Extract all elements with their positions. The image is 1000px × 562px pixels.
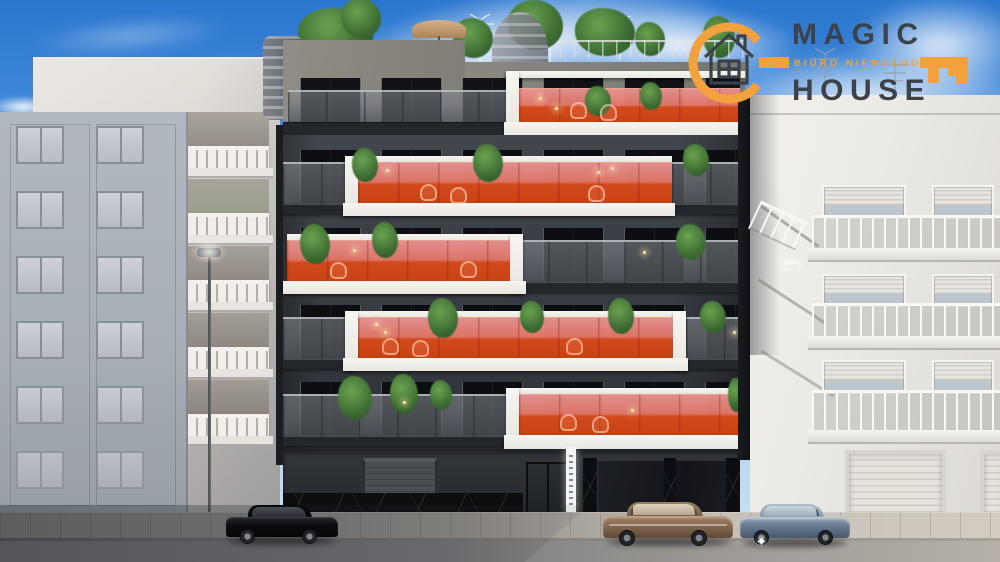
window	[96, 191, 144, 229]
facade-panel	[96, 124, 176, 506]
balcony-plant	[300, 224, 330, 264]
balcony-plant	[352, 148, 378, 182]
window	[16, 256, 64, 294]
balcony-recess	[187, 112, 269, 146]
balcony-plant	[676, 224, 706, 260]
balcony-plant	[700, 301, 726, 333]
balcony-slab	[283, 122, 513, 136]
window	[96, 321, 144, 359]
shuttered-window	[822, 360, 906, 394]
logo-line1: MAGIC	[792, 20, 925, 50]
shuttered-window	[932, 185, 994, 219]
window-light	[596, 170, 601, 175]
house-icon	[705, 35, 753, 83]
balcony-plant	[372, 222, 398, 258]
window	[96, 256, 144, 294]
blue-sedan: ✦	[740, 502, 850, 549]
sparkle-glint: ✦	[756, 534, 767, 550]
balcony-plant	[390, 374, 418, 414]
logo-tagline: BIURO NIERUCHOMOŚCI	[794, 59, 968, 69]
cloud	[29, 9, 231, 62]
window	[16, 126, 64, 164]
window-light	[554, 106, 559, 111]
balcony-recess	[187, 179, 269, 213]
street-scene: ✦ MAGIC BIURO NIERUCHOMOŚCI HOUSE	[0, 0, 1000, 562]
balcony-recess	[187, 380, 269, 414]
balcony-ledge	[177, 369, 273, 379]
featured-building-right-edge	[738, 95, 750, 460]
window-light	[402, 400, 407, 405]
balcony-glass-gray	[283, 162, 347, 205]
balcony-recess	[187, 313, 269, 347]
sign-text-marks	[569, 455, 573, 505]
balcony-plant	[608, 298, 634, 334]
balcony-glass-gray	[283, 317, 347, 360]
facade-panel	[10, 124, 90, 506]
car-wheel	[818, 530, 833, 545]
street-lamp-head	[197, 248, 221, 257]
window-light	[383, 330, 388, 335]
balcony-plant	[520, 301, 544, 333]
rooftop-tree	[341, 0, 381, 38]
shuttered-window	[932, 360, 994, 394]
right-white-building	[750, 95, 1000, 527]
car-wheel	[302, 529, 317, 544]
window-light	[610, 166, 615, 171]
window	[16, 386, 64, 424]
balcony-railing	[812, 390, 1000, 435]
wicker-chair	[412, 340, 429, 357]
balcony-slab-white	[808, 430, 1000, 444]
balcony-frame-slab	[343, 358, 688, 371]
balcony-glass-orange	[358, 162, 672, 204]
balcony-frame-slab	[343, 203, 675, 216]
chrome-trim	[609, 524, 727, 526]
wicker-chair	[570, 102, 587, 119]
wicker-chair	[588, 185, 605, 202]
balustrade-balcony-column	[181, 112, 277, 472]
car-wheel	[691, 530, 707, 546]
shuttered-window	[822, 185, 906, 219]
window	[96, 451, 144, 489]
wicker-chair	[450, 187, 467, 204]
street-lamp-pole	[208, 252, 211, 540]
balcony-glass-gray	[288, 90, 510, 125]
left-gray-building	[0, 112, 188, 512]
window-light	[538, 96, 543, 101]
balcony-ledge	[177, 168, 273, 178]
balcony-plant	[338, 376, 372, 420]
balcony-plant	[473, 144, 503, 182]
wicker-chair	[566, 338, 583, 355]
balcony-slab-white	[808, 248, 1000, 262]
balcony-frame-slab	[283, 281, 526, 294]
balcony-glass-orange	[519, 394, 740, 436]
wicker-chair	[460, 261, 477, 278]
car-window	[631, 504, 697, 515]
black-sedan	[226, 503, 338, 547]
window-light	[630, 408, 635, 413]
wicker-chair	[560, 414, 577, 431]
window-light	[374, 322, 379, 327]
wicker-chair	[600, 104, 617, 121]
car-wheel	[619, 530, 635, 546]
balcony-frame-slab	[504, 435, 750, 449]
wicker-chair	[592, 416, 609, 433]
car-window	[252, 507, 306, 517]
window	[96, 386, 144, 424]
window-light	[732, 330, 737, 335]
brown-sedan	[603, 500, 733, 548]
window	[16, 451, 64, 489]
window	[16, 321, 64, 359]
entrance-sign	[566, 447, 576, 513]
parapet-line	[750, 113, 1000, 115]
balcony-frame-slab	[504, 122, 750, 136]
balcony-ledge	[177, 436, 273, 446]
window-light	[352, 248, 357, 253]
wicker-chair	[420, 184, 437, 201]
wicker-chair	[382, 338, 399, 355]
wicker-chair	[330, 262, 347, 279]
window	[16, 191, 64, 229]
balcony-slab-white	[808, 336, 1000, 350]
car-wheel	[240, 529, 255, 544]
balcony-ledge	[177, 235, 273, 245]
balcony-ledge	[177, 302, 273, 312]
balcony-plant	[428, 298, 458, 338]
balcony-plant	[430, 380, 452, 410]
logo-line2: HOUSE	[792, 76, 931, 106]
window	[96, 126, 144, 164]
wall-lamp	[787, 264, 797, 269]
window-light	[642, 250, 647, 255]
car-window	[764, 506, 819, 516]
window-light	[385, 168, 390, 173]
balcony-plant	[683, 144, 709, 176]
